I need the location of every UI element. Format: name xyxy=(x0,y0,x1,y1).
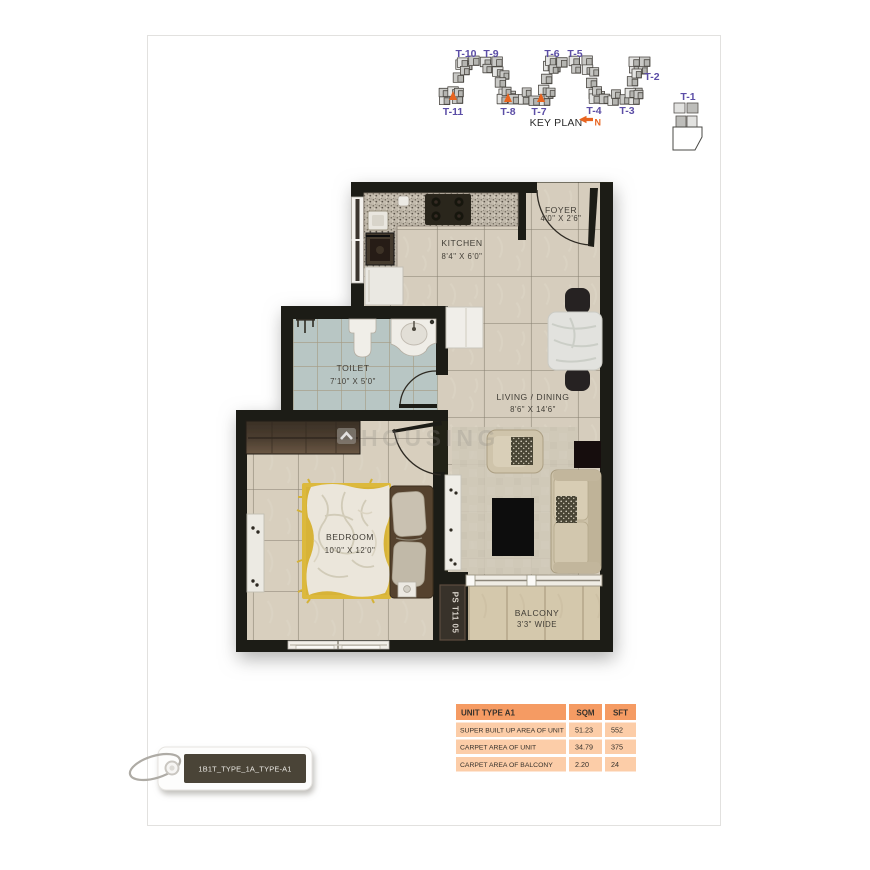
svg-text:PS T11 05: PS T11 05 xyxy=(451,592,460,634)
svg-text:N: N xyxy=(595,118,602,128)
svg-text:BEDROOM: BEDROOM xyxy=(326,532,374,542)
svg-text:T-5: T-5 xyxy=(567,48,582,60)
svg-text:SQM: SQM xyxy=(576,709,595,718)
svg-text:HOUSING: HOUSING xyxy=(361,425,500,451)
svg-text:KITCHEN: KITCHEN xyxy=(441,238,482,248)
svg-text:T-3: T-3 xyxy=(619,105,634,117)
svg-text:T-6: T-6 xyxy=(544,48,559,60)
svg-text:T-8: T-8 xyxy=(500,106,515,118)
svg-text:KEY PLAN: KEY PLAN xyxy=(530,117,583,129)
svg-text:T-4: T-4 xyxy=(586,105,601,117)
svg-text:552: 552 xyxy=(611,726,623,735)
svg-text:8'6" X 14'6": 8'6" X 14'6" xyxy=(510,405,556,414)
svg-text:SUPER BUILT UP AREA OF UNIT: SUPER BUILT UP AREA OF UNIT xyxy=(460,728,564,735)
svg-text:T-1: T-1 xyxy=(680,91,695,103)
svg-text:8'4" X 6'0": 8'4" X 6'0" xyxy=(442,252,483,261)
svg-text:34.79: 34.79 xyxy=(575,743,593,752)
svg-text:BALCONY: BALCONY xyxy=(515,608,560,618)
svg-text:7'10" X 5'0": 7'10" X 5'0" xyxy=(330,377,376,386)
svg-text:2.20: 2.20 xyxy=(575,760,589,769)
svg-text:3'3" WIDE: 3'3" WIDE xyxy=(517,620,557,629)
svg-text:375: 375 xyxy=(611,743,623,752)
svg-text:UNIT TYPE A1: UNIT TYPE A1 xyxy=(461,709,515,718)
svg-text:T-11: T-11 xyxy=(443,106,464,118)
svg-text:LIVING / DINING: LIVING / DINING xyxy=(497,392,570,402)
svg-text:CARPET AREA OF UNIT: CARPET AREA OF UNIT xyxy=(460,745,536,752)
svg-text:T-9: T-9 xyxy=(483,48,498,60)
svg-text:TOILET: TOILET xyxy=(337,363,370,373)
svg-text:SFT: SFT xyxy=(613,709,628,718)
svg-text:24: 24 xyxy=(611,760,619,769)
svg-text:T-2: T-2 xyxy=(644,71,659,83)
svg-text:51.23: 51.23 xyxy=(575,726,593,735)
svg-text:10'0" X 12'0": 10'0" X 12'0" xyxy=(325,546,376,555)
svg-text:CARPET AREA OF BALCONY: CARPET AREA OF BALCONY xyxy=(460,762,553,769)
svg-text:T-10: T-10 xyxy=(455,48,476,60)
svg-text:4'0" X 2'6": 4'0" X 2'6" xyxy=(541,214,582,223)
svg-text:1B1T_TYPE_1A_TYPE-A1: 1B1T_TYPE_1A_TYPE-A1 xyxy=(198,765,291,774)
